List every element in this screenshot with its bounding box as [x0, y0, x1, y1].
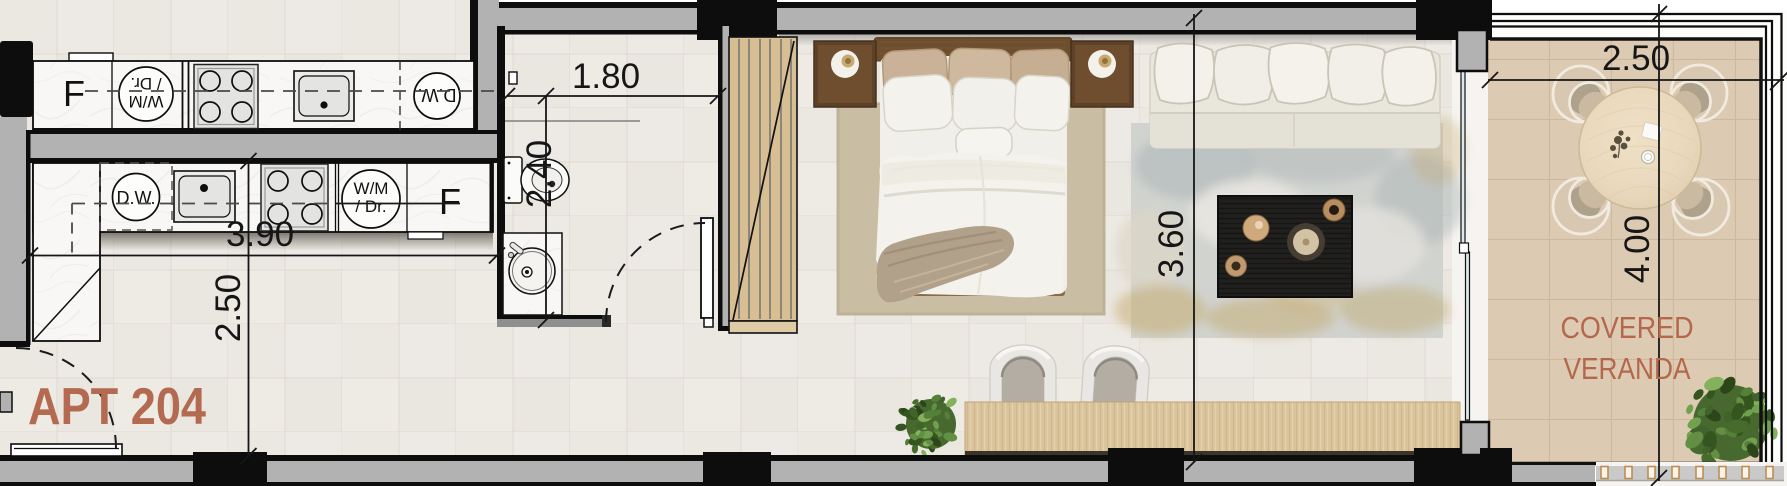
svg-text:3.60: 3.60: [1152, 210, 1191, 278]
svg-text:2.50: 2.50: [209, 274, 248, 342]
svg-text:APT 204: APT 204: [28, 378, 206, 436]
svg-text:VERANDA: VERANDA: [1564, 351, 1691, 386]
svg-text:D.W.: D.W.: [117, 188, 156, 208]
svg-text:2.40: 2.40: [520, 140, 559, 208]
svg-text:COVERED: COVERED: [1561, 310, 1694, 345]
svg-text:W/M: W/M: [129, 92, 164, 111]
svg-text:1.80: 1.80: [572, 57, 640, 96]
svg-text:4.00: 4.00: [1618, 215, 1657, 283]
svg-text:/ Dr.: / Dr.: [355, 197, 386, 216]
svg-text:F: F: [439, 181, 461, 222]
svg-text:3.90: 3.90: [226, 215, 294, 254]
svg-text:F: F: [63, 73, 85, 114]
svg-text:W/M: W/M: [354, 179, 389, 198]
svg-text:D.W.: D.W.: [418, 85, 457, 105]
